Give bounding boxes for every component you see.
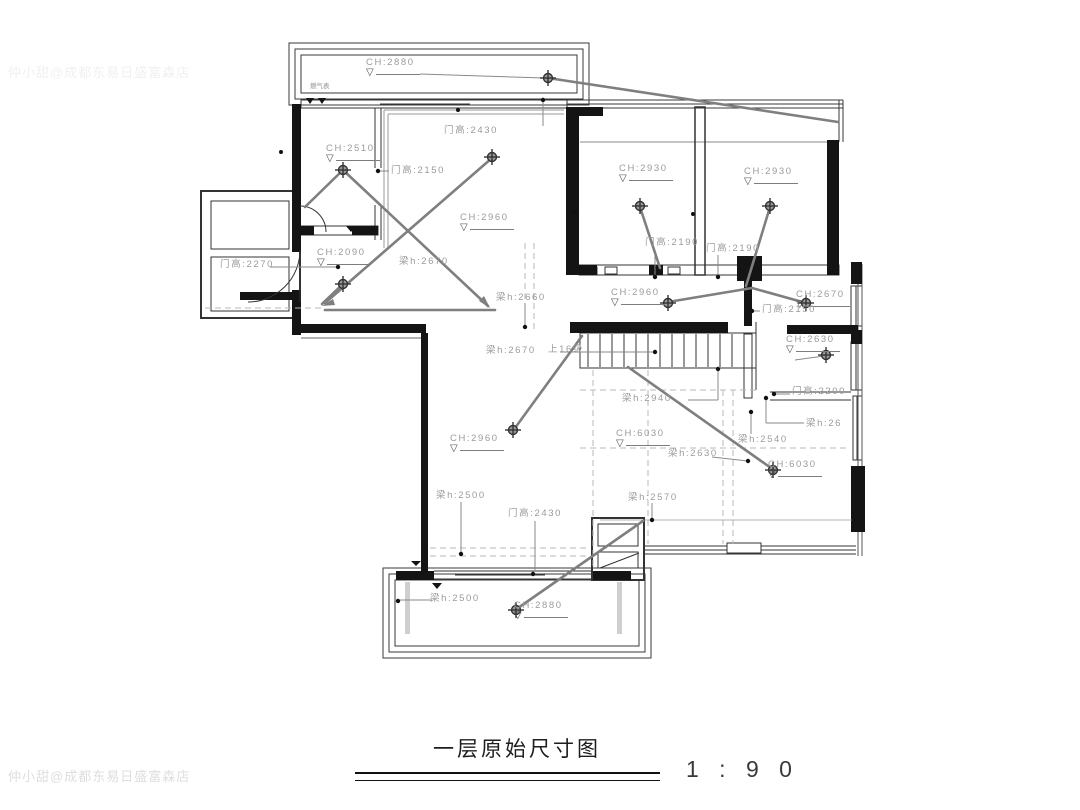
label-ch-2510: CH:2510▽ — [326, 144, 380, 165]
drawing-title: 一层原始尺寸图 — [433, 733, 601, 763]
label-ch-6030-a: CH:6030▽ — [616, 429, 670, 450]
watermark-top: 仲小甜@成都东易日盛富森店 — [8, 62, 190, 81]
label-door-2430-bottom: 门高:2430 — [508, 509, 562, 519]
label-beam-2670-stair: 梁h:2670 — [486, 346, 536, 356]
elevation-flag-icon: ▽ — [619, 173, 627, 184]
elevation-flag-icon: ▽ — [326, 153, 334, 164]
wire-arrowheads — [322, 296, 490, 308]
label-beam-2500-balcony: 梁h:2500 — [430, 594, 480, 604]
elevation-flag-icon: ▽ — [366, 67, 374, 78]
elevation-flag-icon: ▽ — [611, 297, 619, 308]
label-beam-26-truncated: 梁h:26 — [806, 419, 842, 429]
label-beam-2540: 梁h:2540 — [738, 435, 788, 445]
floor-plan-drawing: CH:2880▽ 门高:2430 CH:2510▽ 门高:2150 CH:296… — [0, 0, 1080, 810]
stairs — [588, 334, 744, 367]
label-ch-2960-dining: CH:2960▽ — [460, 213, 514, 234]
label-beam-2500-living: 梁h:2500 — [436, 491, 486, 501]
label-beam-2670-left: 梁h:2670 — [399, 257, 449, 267]
top-balcony — [289, 43, 589, 105]
label-ch-2930-bed1: CH:2930▽ — [619, 164, 673, 185]
lamp-symbols — [335, 70, 834, 618]
elevation-flag-icon: ▽ — [514, 610, 522, 621]
label-door-2430: 门高:2430 — [444, 126, 498, 136]
door-arcs — [248, 206, 326, 302]
label-door-2200: 门高:2200 — [792, 387, 846, 397]
elevation-flag-icon: ▽ — [616, 438, 624, 449]
label-door-2150: 门高:2150 — [391, 166, 445, 176]
label-ch-6030-b: CH:6030▽ — [768, 460, 822, 481]
label-beam-2630: 梁h:2630 — [668, 449, 718, 459]
label-ch-2880-balcony: CH:2880▽ — [514, 601, 568, 622]
scale-ratio: 1 : 9 0 — [686, 756, 799, 783]
label-door-2150-right: 门高:2150 — [762, 305, 816, 315]
label-ch-2880: CH:2880▽ — [366, 58, 420, 79]
plan-linework — [0, 0, 1080, 810]
label-door-2270: 门高:2270 — [220, 260, 274, 270]
watermark-bottom: 仲小甜@成都东易日盛富森店 — [8, 766, 190, 785]
elevation-flag-icon: ▽ — [768, 469, 776, 480]
label-gas-meter: 燃气表 — [310, 83, 330, 90]
label-ch-2960-corridor: CH:2960▽ — [611, 288, 665, 309]
label-ch-2930-bed2: CH:2930▽ — [744, 167, 798, 188]
label-door-2190-a: 门高:2190 — [645, 238, 699, 248]
label-ch-2960-living: CH:2960▽ — [450, 434, 504, 455]
label-beam-2940: 梁h:2940 — [622, 394, 672, 404]
label-ch-2630: CH:2630▽ — [786, 335, 840, 356]
label-beam-2660: 梁h:2660 — [496, 293, 546, 303]
elevation-flag-icon: ▽ — [460, 222, 468, 233]
scale-bar — [355, 772, 660, 781]
label-ch-2090: CH:2090▽ — [317, 248, 371, 269]
elevation-flag-icon: ▽ — [786, 344, 794, 355]
elevation-flag-icon: ▽ — [744, 176, 752, 187]
elevation-flag-icon: ▽ — [317, 257, 325, 268]
elevation-flag-icon: ▽ — [450, 443, 458, 454]
label-beam-2570: 梁h:2570 — [628, 493, 678, 503]
label-stair-note: 上16级 — [548, 345, 584, 355]
label-door-2190-b: 门高:2190 — [706, 244, 760, 254]
